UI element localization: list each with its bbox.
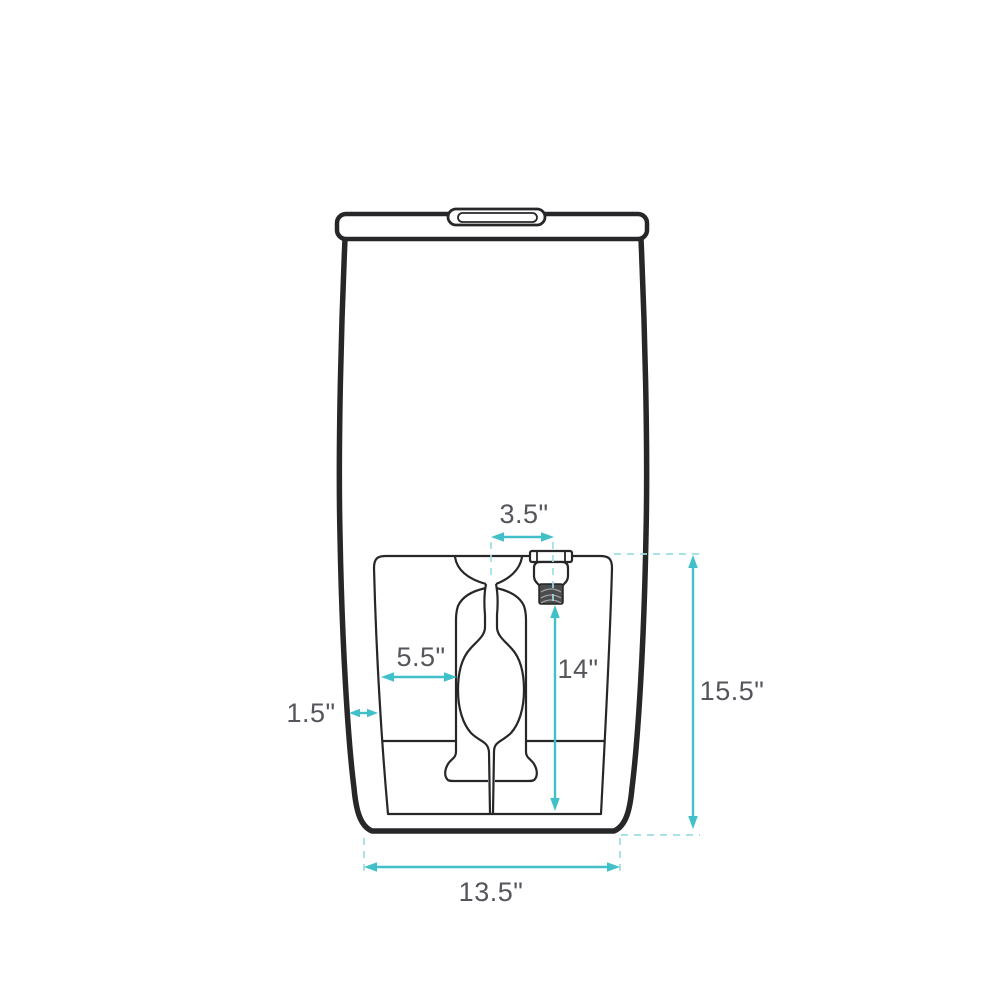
- arrowhead-left: [349, 709, 360, 717]
- valve-threads: [539, 584, 563, 604]
- trapway-funnel: [455, 557, 522, 584]
- dimension-overall-height: 15.5": [614, 554, 764, 835]
- arrowhead-bottom: [550, 798, 560, 811]
- water-inlet-valve: [530, 551, 572, 604]
- flush-button-inner: [458, 213, 537, 222]
- arrowhead-top: [688, 555, 698, 568]
- dimension-trapway-width: 5.5": [381, 642, 457, 682]
- flush-button: [448, 209, 545, 225]
- trapway-outer-left: [445, 588, 488, 781]
- arrowhead-left: [364, 862, 377, 872]
- dimension-side-inset: 1.5": [286, 698, 378, 728]
- dimension-inlet-height: 14": [550, 605, 598, 811]
- trapway: [445, 557, 537, 813]
- dim-label: 3.5": [499, 499, 548, 529]
- arrowhead-right: [367, 709, 378, 717]
- valve-coupling: [534, 562, 568, 586]
- dim-label: 5.5": [396, 642, 445, 672]
- dim-label: 1.5": [286, 698, 335, 728]
- dim-label: 14": [557, 654, 598, 684]
- arrowhead-top: [550, 605, 560, 618]
- arrowhead-left: [381, 672, 394, 682]
- arrowhead-bottom: [688, 816, 698, 829]
- dim-label: 13.5": [459, 877, 524, 907]
- arrowhead-right: [541, 532, 554, 542]
- trapway-inner-left: [458, 584, 490, 813]
- dimension-diagram: 3.5" 5.5" 1.5" 14" 15.5" 13.: [0, 0, 1000, 1000]
- arrowhead-left: [491, 532, 504, 542]
- arrowhead-right: [607, 862, 620, 872]
- dim-label: 15.5": [700, 676, 765, 706]
- trapway-inner-right: [493, 584, 524, 813]
- toilet-drawing: [337, 209, 647, 831]
- dimension-base-width: 13.5": [364, 838, 620, 907]
- trapway-outer-right: [495, 588, 537, 781]
- tank-body-outline: [339, 239, 646, 831]
